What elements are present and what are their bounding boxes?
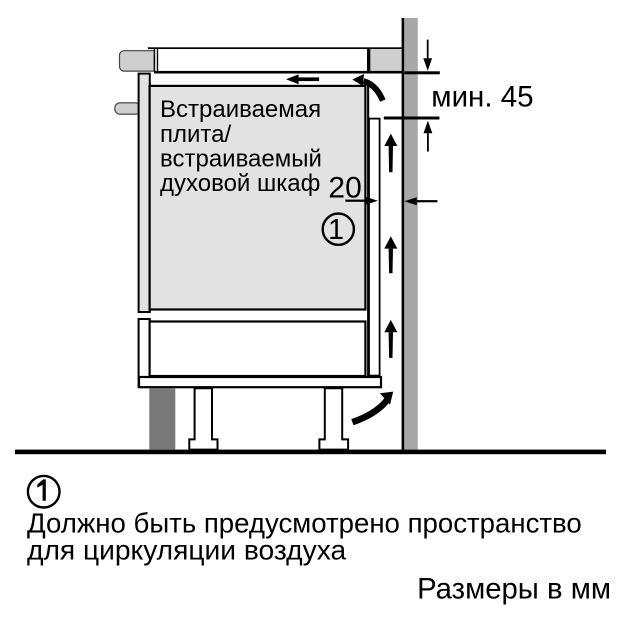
svg-text:1: 1 [328,214,344,246]
svg-text:для циркуляции воздуха: для циркуляции воздуха [27,533,346,565]
svg-text:20: 20 [328,172,361,205]
svg-text:плита/: плита/ [160,121,231,148]
svg-text:Размеры в мм: Размеры в мм [417,572,611,605]
svg-text:мин. 45: мин. 45 [431,81,533,114]
svg-text:встраиваемый: встраиваемый [160,145,322,172]
svg-text:духовой шкаф: духовой шкаф [160,170,320,197]
svg-text:Встраиваемая: Встраиваемая [160,96,321,123]
